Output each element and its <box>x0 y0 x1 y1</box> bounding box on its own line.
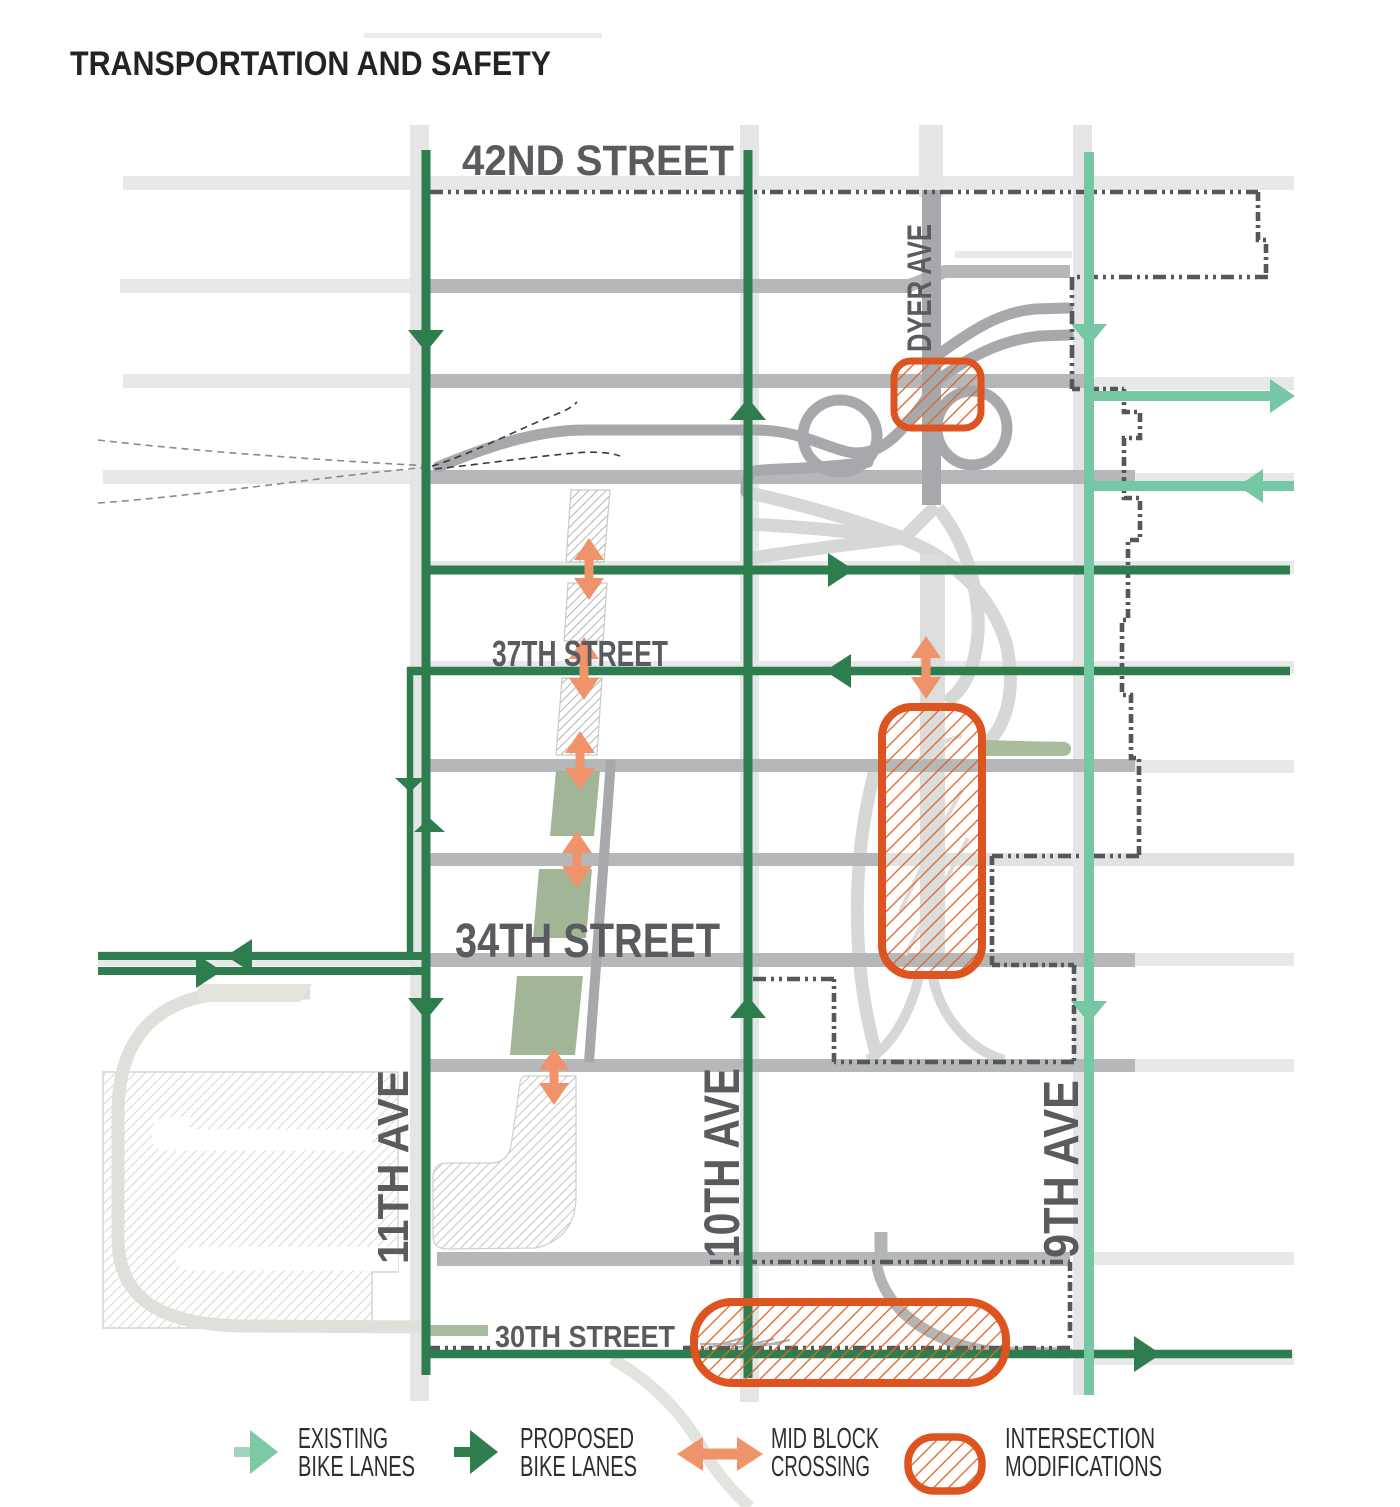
svg-text:MODIFICATIONS: MODIFICATIONS <box>1005 1451 1162 1483</box>
svg-text:BIKE LANES: BIKE LANES <box>298 1451 415 1483</box>
svg-text:BIKE LANES: BIKE LANES <box>520 1451 637 1483</box>
svg-text:DYER AVE: DYER AVE <box>901 224 939 352</box>
svg-text:9TH AVE: 9TH AVE <box>1035 1080 1089 1258</box>
svg-text:34TH STREET: 34TH STREET <box>455 915 720 968</box>
svg-text:37TH STREET: 37TH STREET <box>492 633 668 674</box>
svg-text:TRANSPORTATION AND SAFETY: TRANSPORTATION AND SAFETY <box>70 45 551 83</box>
svg-text:11TH AVE: 11TH AVE <box>369 1070 418 1264</box>
svg-text:30TH STREET: 30TH STREET <box>495 1319 675 1354</box>
svg-text:CROSSING: CROSSING <box>771 1451 870 1483</box>
svg-text:42ND STREET: 42ND STREET <box>462 137 734 185</box>
svg-text:10TH AVE: 10TH AVE <box>694 1068 750 1258</box>
